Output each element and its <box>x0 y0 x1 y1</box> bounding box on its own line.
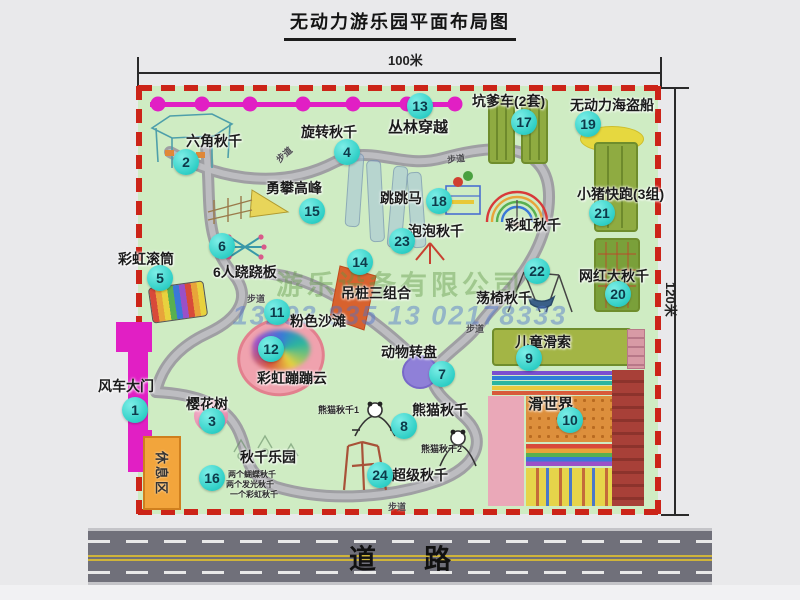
attraction-label: 风车大门 <box>98 376 154 396</box>
attraction-number-badge: 20 <box>605 281 631 307</box>
footpath-label: 步道 <box>247 292 265 305</box>
attraction-number-badge: 3 <box>199 408 225 434</box>
attraction-label: 熊猫秋千 <box>412 400 468 420</box>
slide-world-pink-band <box>488 396 524 506</box>
attraction-label: 小猪快跑(3组) <box>577 184 664 204</box>
attraction-number-badge: 13 <box>407 93 433 119</box>
attraction-number-badge: 15 <box>299 198 325 224</box>
attraction-label: 荡椅秋千 <box>476 288 532 308</box>
attraction-number-badge: 1 <box>122 397 148 423</box>
slide-world-stripe <box>492 376 616 380</box>
top-dimension-tick-left <box>137 57 139 88</box>
attraction-label: 6人跷跷板 <box>213 262 277 282</box>
footpath-label: 步道 <box>466 322 484 335</box>
zipline-dot <box>448 97 463 112</box>
road: 道路 <box>88 528 712 585</box>
slide-world-rainbow-band <box>526 444 612 466</box>
attraction-number-badge: 11 <box>264 299 290 325</box>
attraction-number-badge: 23 <box>389 228 415 254</box>
attraction-label: 勇攀高峰 <box>266 178 322 198</box>
attraction-label: 彩虹蹦蹦云 <box>257 368 327 388</box>
right-dimension-tick-top <box>661 87 689 89</box>
attraction-number-badge: 21 <box>589 200 615 226</box>
attraction-label: 秋千乐园 <box>240 447 296 467</box>
attraction-label: 泡泡秋千 <box>408 221 464 241</box>
road-label: 道路 <box>301 537 499 576</box>
windmill-gate-top <box>116 322 152 352</box>
top-dimension-tick-right <box>660 57 662 88</box>
slide-world-yellow-band <box>526 468 612 506</box>
slide-world-stripe <box>492 386 616 390</box>
attraction-number-badge: 19 <box>575 111 601 137</box>
attraction-label: 坑爹车(2套) <box>472 91 545 111</box>
attraction-label: 六角秋千 <box>186 131 242 151</box>
attraction-number-badge: 8 <box>391 413 417 439</box>
attraction-label: 动物转盘 <box>381 342 437 362</box>
slide-world-red-tower <box>612 370 644 506</box>
attraction-label: 吊桩三组合 <box>341 283 411 303</box>
attraction-number-badge: 2 <box>173 149 199 175</box>
attraction-label: 粉色沙滩 <box>290 311 346 331</box>
attraction-number-badge: 12 <box>258 336 284 362</box>
attraction-number-badge: 22 <box>524 258 550 284</box>
slide-world-stripe <box>492 371 616 375</box>
below-road-strip <box>0 585 800 600</box>
attraction-label: 丛林穿越 <box>388 116 448 137</box>
rest-area-box: 休息区 <box>143 436 181 510</box>
attraction-number-badge: 24 <box>367 462 393 488</box>
attraction-number-badge: 10 <box>557 407 583 433</box>
kids-zipline-ladder <box>627 329 645 369</box>
height-dimension-label: 120米 <box>662 282 681 317</box>
zipline-dot <box>296 97 311 112</box>
park-border-right <box>655 86 661 514</box>
footpath-label: 步道 <box>446 151 465 166</box>
top-dimension-line <box>138 72 661 74</box>
attraction-label: 跳跳马 <box>380 188 422 208</box>
attraction-number-badge: 18 <box>426 188 452 214</box>
attraction-number-badge: 9 <box>516 345 542 371</box>
sub-label: 熊猫秋千2 <box>421 442 462 455</box>
page-title: 无动力游乐园平面布局图 <box>284 8 516 41</box>
attraction-label: 超级秋千 <box>392 465 448 485</box>
playground-map-screenshot: { "title": "无动力游乐园平面布局图", "dimensions": … <box>0 0 800 600</box>
zipline-dot <box>195 97 210 112</box>
attraction-label: 彩虹秋千 <box>505 215 561 235</box>
attraction-number-badge: 16 <box>199 465 225 491</box>
attraction-number-badge: 14 <box>347 249 373 275</box>
right-dimension-tick-bottom <box>661 514 689 516</box>
zipline-dot <box>243 97 258 112</box>
park-border-top <box>138 85 658 91</box>
attraction-number-badge: 4 <box>334 139 360 165</box>
slide-world-stripe <box>492 381 616 385</box>
sub-label: 熊猫秋千1 <box>318 403 359 416</box>
zipline-dot <box>346 97 361 112</box>
attraction-number-badge: 7 <box>429 361 455 387</box>
attraction-number-badge: 5 <box>147 265 173 291</box>
attraction-number-badge: 17 <box>511 109 537 135</box>
zipline-dot <box>151 97 166 112</box>
width-dimension-label: 100米 <box>388 50 423 69</box>
sub-label: 一个彩虹秋千 <box>230 489 278 500</box>
attraction-number-badge: 6 <box>209 233 235 259</box>
footpath-label: 步道 <box>388 500 406 513</box>
rest-area-label: 休息区 <box>153 450 172 495</box>
